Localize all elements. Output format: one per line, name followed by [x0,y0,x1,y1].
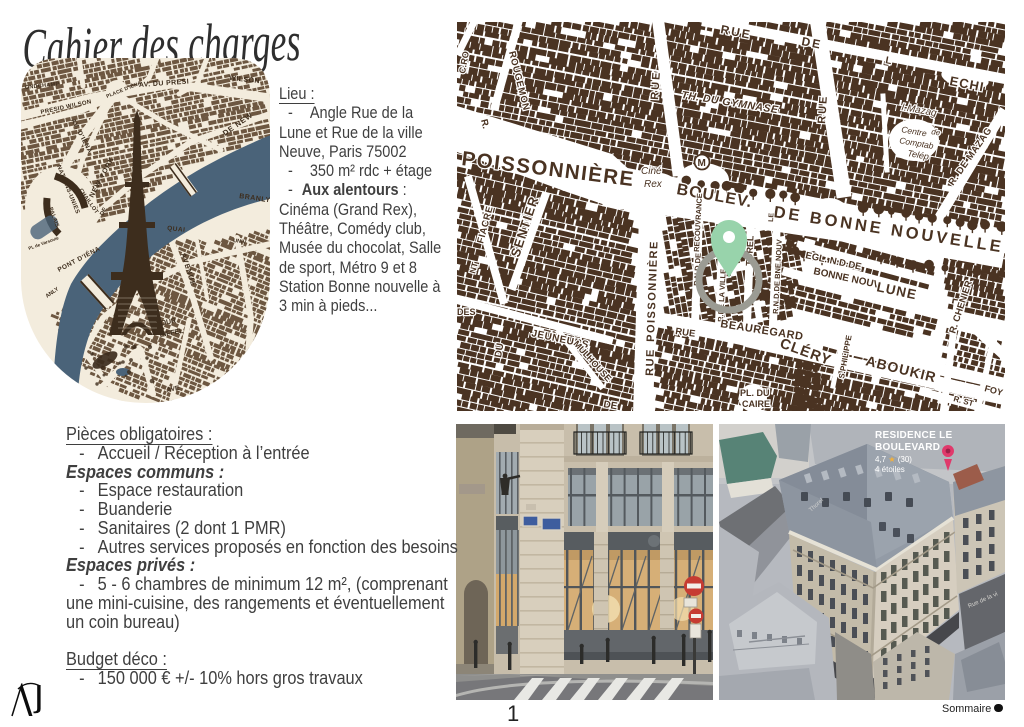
svg-text:M: M [698,158,706,169]
svg-text:BOULEVARD: BOULEVARD [875,442,940,453]
svg-text:RUE: RUE [649,70,663,100]
svg-text:RUE: RUE [816,94,830,124]
svg-text:CAIRE: CAIRE [742,399,770,409]
svg-text:Rex: Rex [644,179,663,190]
svg-text:RESIDENCE LE: RESIDENCE LE [875,430,953,441]
svg-text:LE: LE [768,212,775,222]
svg-text:Ciné: Ciné [641,166,662,177]
svg-text:DE: DE [602,399,618,411]
svg-text:RUE: RUE [644,348,657,376]
svg-text:4 étoiles: 4 étoiles [875,465,905,474]
svg-text:PL. DU: PL. DU [740,388,770,398]
svg-text:4,7 ★ (30): 4,7 ★ (30) [875,455,912,464]
